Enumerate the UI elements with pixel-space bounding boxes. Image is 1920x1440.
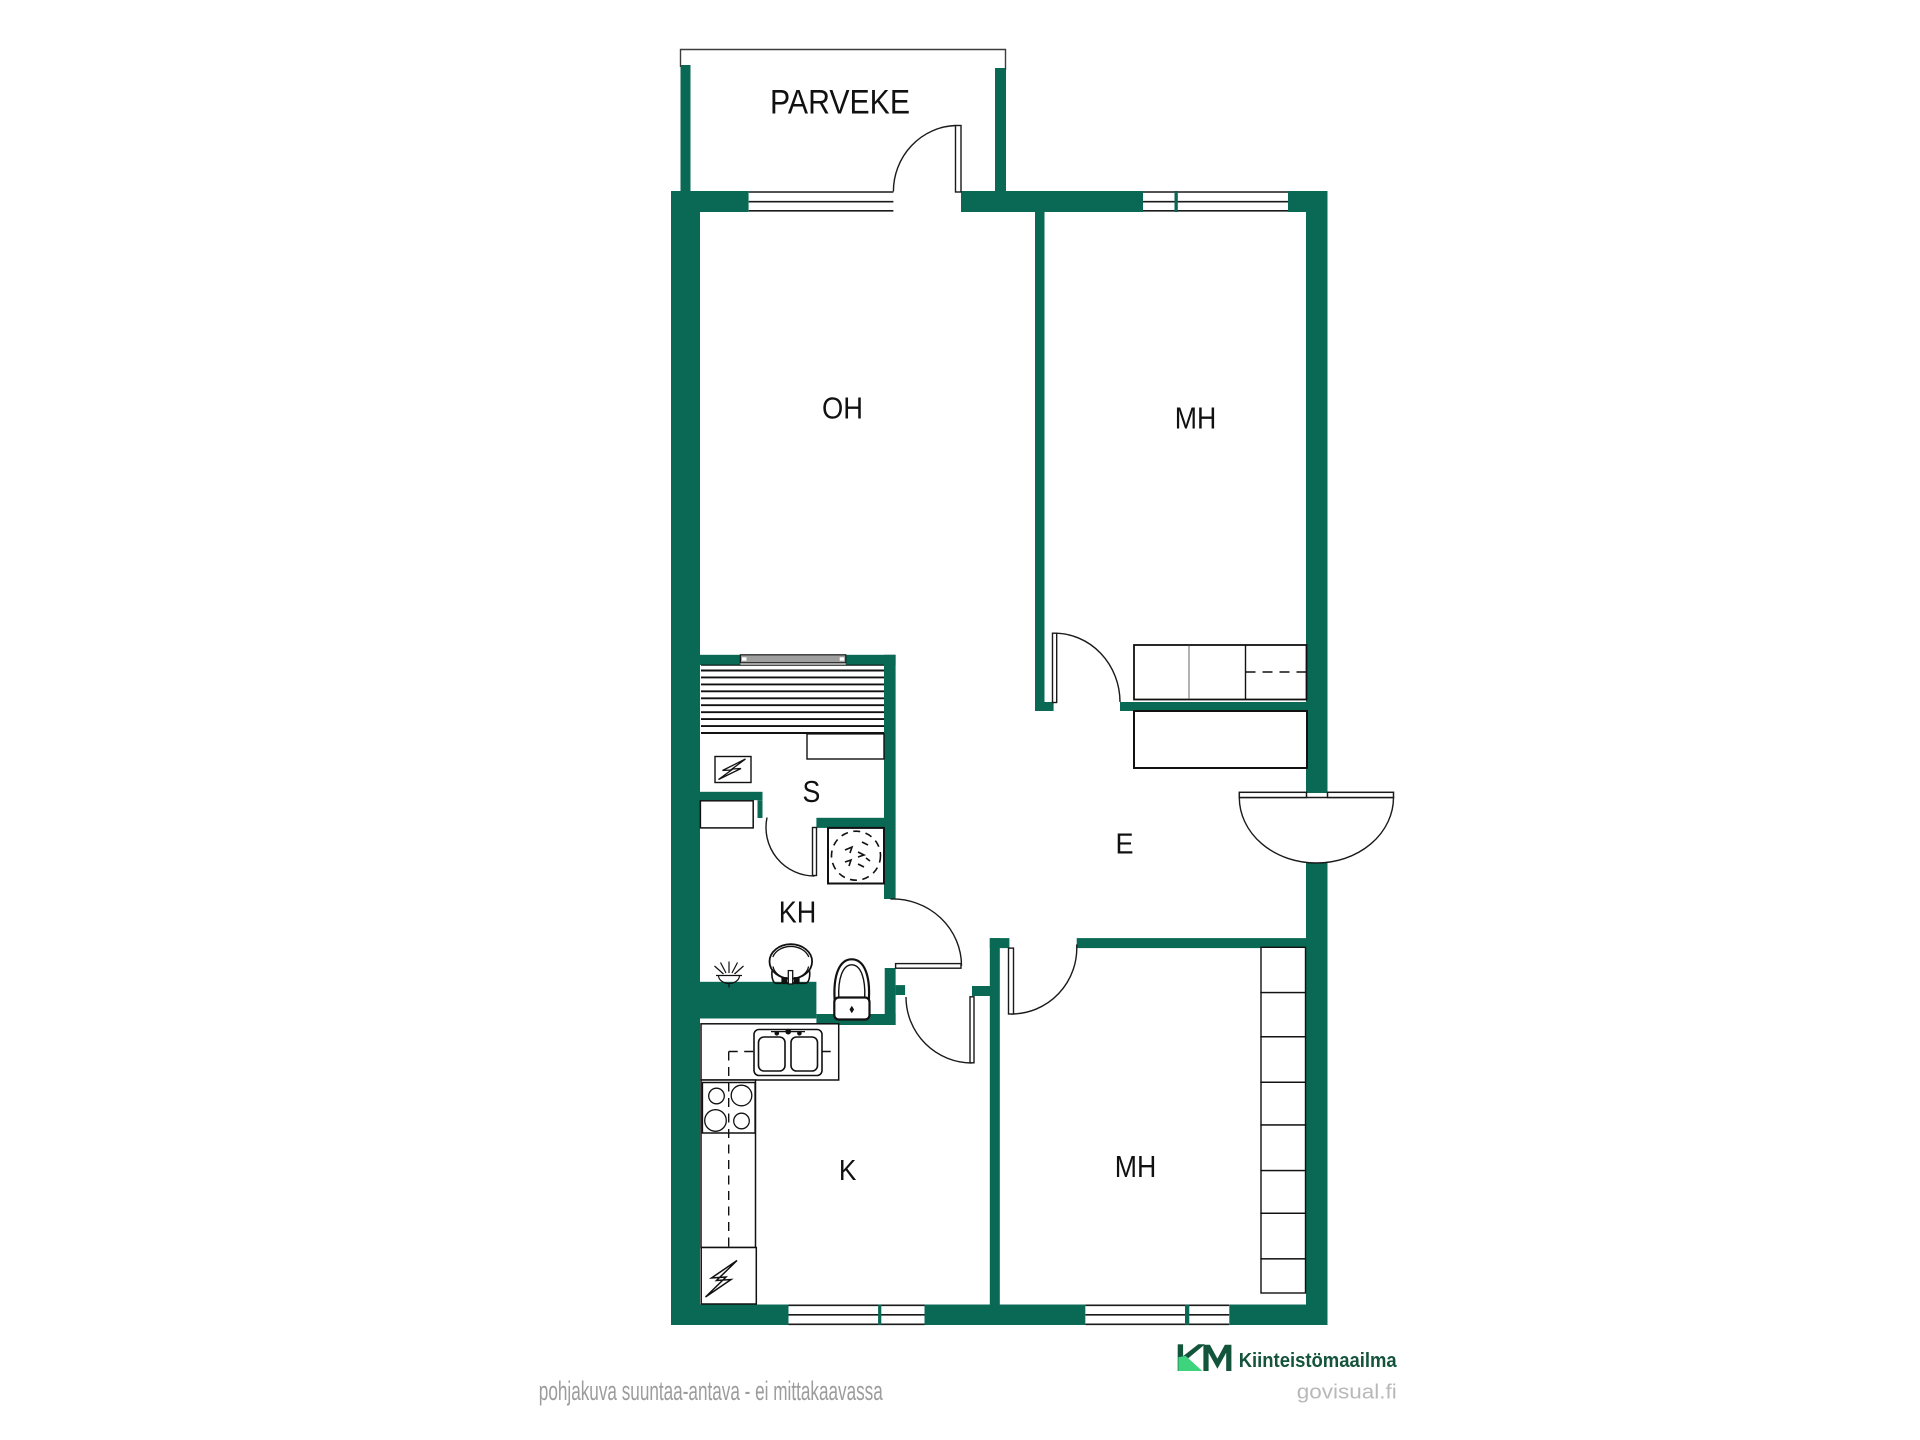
svg-text:MH: MH: [1175, 402, 1217, 436]
svg-text:OH: OH: [822, 392, 863, 426]
svg-text:E: E: [1116, 828, 1134, 860]
svg-text:Kiinteistömaailma: Kiinteistömaailma: [1239, 1350, 1398, 1372]
svg-text:pohjakuva suuntaa-antava - ei: pohjakuva suuntaa-antava - ei mittakaava…: [539, 1376, 883, 1406]
svg-text:govisual.fi: govisual.fi: [1297, 1382, 1397, 1404]
svg-text:S: S: [803, 775, 821, 809]
svg-text:PARVEKE: PARVEKE: [770, 83, 910, 121]
svg-text:KH: KH: [779, 895, 817, 929]
svg-text:K: K: [839, 1155, 857, 1187]
svg-text:MH: MH: [1115, 1150, 1157, 1184]
